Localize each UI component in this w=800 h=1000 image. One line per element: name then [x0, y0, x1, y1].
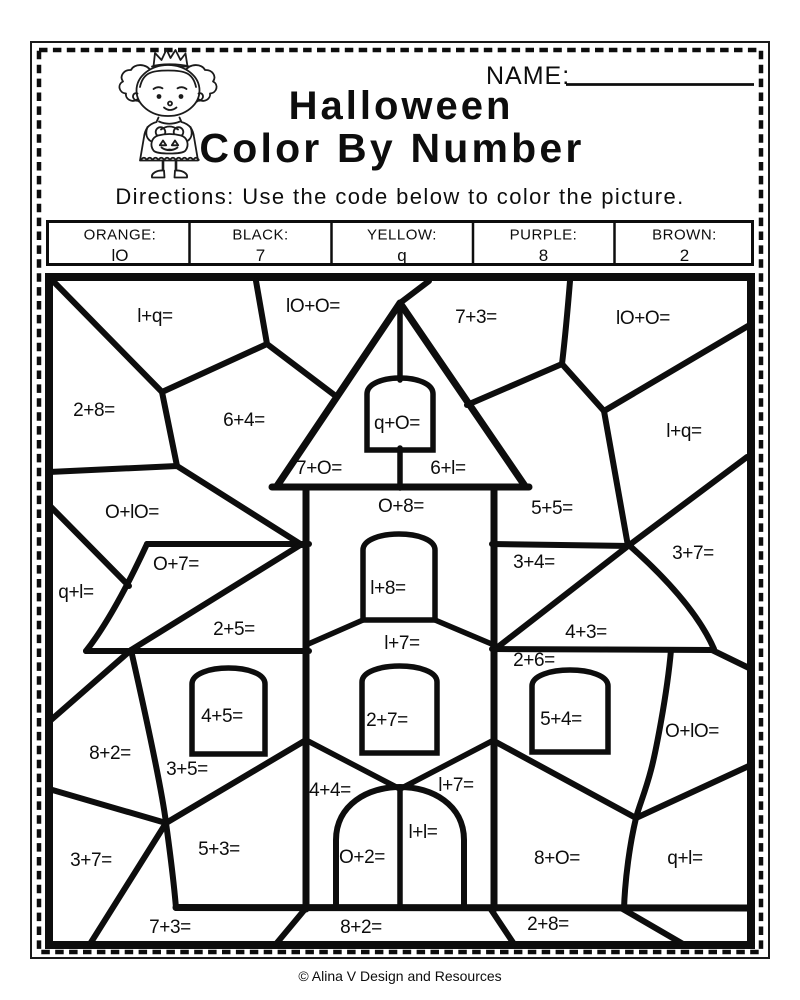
- svg-text:8: 8: [539, 246, 548, 265]
- svg-text:l+8=: l+8=: [370, 578, 406, 599]
- svg-text:lO: lO: [112, 246, 129, 265]
- svg-text:6+l=: 6+l=: [430, 458, 466, 479]
- svg-text:l+q=: l+q=: [137, 306, 173, 327]
- svg-text:q+l=: q+l=: [667, 848, 703, 869]
- svg-text:ORANGE:: ORANGE:: [84, 227, 157, 244]
- svg-text:2+7=: 2+7=: [366, 710, 408, 731]
- svg-text:BROWN:: BROWN:: [652, 227, 717, 244]
- svg-text:5+4=: 5+4=: [540, 709, 582, 730]
- svg-text:l+q=: l+q=: [666, 421, 702, 442]
- svg-text:l+7=: l+7=: [384, 633, 420, 654]
- svg-text:© Alina V Design and Resources: © Alina V Design and Resources: [298, 968, 501, 984]
- svg-text:8+2=: 8+2=: [89, 743, 131, 764]
- svg-text:O+7=: O+7=: [153, 554, 199, 575]
- svg-text:7+3=: 7+3=: [149, 917, 191, 938]
- svg-text:2+8=: 2+8=: [527, 914, 569, 935]
- svg-text:PURPLE:: PURPLE:: [510, 227, 578, 244]
- svg-text:7+O=: 7+O=: [296, 458, 342, 479]
- svg-text:2: 2: [680, 246, 689, 265]
- svg-text:q+l=: q+l=: [58, 582, 94, 603]
- svg-text:q+O=: q+O=: [374, 413, 420, 434]
- svg-text:6+4=: 6+4=: [223, 410, 265, 431]
- svg-text:q: q: [397, 246, 406, 265]
- svg-text:BLACK:: BLACK:: [232, 227, 288, 244]
- svg-text:2+5=: 2+5=: [213, 619, 255, 640]
- svg-text:2+6=: 2+6=: [513, 650, 555, 671]
- svg-text:3+7=: 3+7=: [672, 543, 714, 564]
- svg-text:Color By Number: Color By Number: [199, 125, 584, 171]
- svg-text:YELLOW:: YELLOW:: [367, 227, 437, 244]
- svg-text:O+lO=: O+lO=: [665, 721, 719, 742]
- svg-text:8+O=: 8+O=: [534, 848, 580, 869]
- svg-text:l+7=: l+7=: [438, 775, 474, 796]
- svg-text:5+3=: 5+3=: [198, 839, 240, 860]
- svg-text:lO+O=: lO+O=: [286, 296, 340, 317]
- svg-text:O+lO=: O+lO=: [105, 502, 159, 523]
- svg-text:l+l=: l+l=: [408, 822, 437, 843]
- svg-text:Directions: Use the code below: Directions: Use the code below to color …: [115, 184, 684, 209]
- svg-text:lO+O=: lO+O=: [616, 308, 670, 329]
- svg-text:4+3=: 4+3=: [565, 622, 607, 643]
- svg-text:3+5=: 3+5=: [166, 759, 208, 780]
- svg-text:O+8=: O+8=: [378, 496, 424, 517]
- svg-text:7+3=: 7+3=: [455, 307, 497, 328]
- svg-text:4+5=: 4+5=: [201, 706, 243, 727]
- svg-text:Halloween: Halloween: [289, 84, 514, 128]
- svg-text:O+2=: O+2=: [339, 847, 385, 868]
- svg-text:5+5=: 5+5=: [531, 498, 573, 519]
- svg-text:8+2=: 8+2=: [340, 917, 382, 938]
- svg-text:7: 7: [256, 246, 265, 265]
- svg-text:2+8=: 2+8=: [73, 400, 115, 421]
- svg-text:4+4=: 4+4=: [309, 780, 351, 801]
- svg-text:3+7=: 3+7=: [70, 850, 112, 871]
- svg-text:3+4=: 3+4=: [513, 552, 555, 573]
